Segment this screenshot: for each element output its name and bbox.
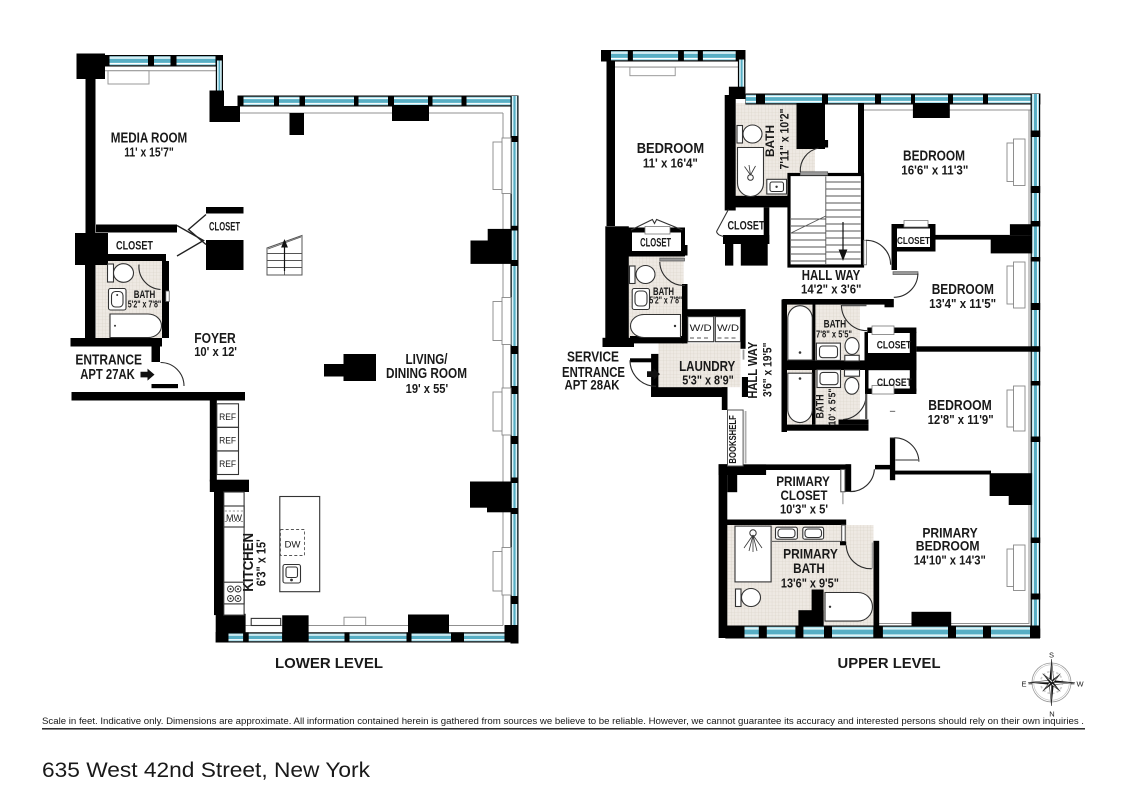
svg-text:W: W xyxy=(1076,680,1084,689)
svg-text:5'3" x 8'9": 5'3" x 8'9" xyxy=(682,373,734,387)
svg-text:W/D: W/D xyxy=(690,323,712,334)
svg-text:E: E xyxy=(1021,680,1026,689)
svg-text:BEDROOM: BEDROOM xyxy=(928,398,992,414)
svg-text:14'2" x 3'6": 14'2" x 3'6" xyxy=(801,283,861,297)
svg-text:DINING ROOM: DINING ROOM xyxy=(386,366,467,382)
svg-text:BATH: BATH xyxy=(763,125,777,157)
svg-text:10' x 5'5": 10' x 5'5" xyxy=(827,388,838,425)
svg-text:APT 28AK: APT 28AK xyxy=(565,378,620,393)
svg-text:BOOKSHELF: BOOKSHELF xyxy=(728,415,739,463)
svg-text:11' x 16'4": 11' x 16'4" xyxy=(643,157,698,171)
svg-text:7'11" x 10'2": 7'11" x 10'2" xyxy=(778,109,792,170)
svg-text:12'8" x 11'9": 12'8" x 11'9" xyxy=(928,413,994,427)
svg-text:CLOSET: CLOSET xyxy=(727,218,765,232)
svg-text:10'3" x 5': 10'3" x 5' xyxy=(780,502,828,516)
svg-text:S: S xyxy=(1049,651,1054,660)
svg-text:BEDROOM: BEDROOM xyxy=(916,539,980,554)
svg-text:3'6" x 19'5": 3'6" x 19'5" xyxy=(761,343,775,398)
svg-text:11' x 15'7": 11' x 15'7" xyxy=(124,146,174,160)
svg-text:CLOSET: CLOSET xyxy=(209,220,240,234)
svg-text:N: N xyxy=(1049,710,1054,719)
svg-text:16'6" x 11'3": 16'6" x 11'3" xyxy=(901,164,968,178)
svg-text:APT 27AK: APT 27AK xyxy=(80,367,135,383)
svg-text:6'3" x 15': 6'3" x 15' xyxy=(255,539,269,586)
svg-text:UPPER LEVEL: UPPER LEVEL xyxy=(838,655,941,672)
svg-text:14'10" x 14'3": 14'10" x 14'3" xyxy=(914,553,986,567)
svg-text:CLOSET: CLOSET xyxy=(116,239,154,253)
svg-text:635 West 42nd Street, New York: 635 West 42nd Street, New York xyxy=(42,759,371,782)
svg-text:DW: DW xyxy=(285,540,302,550)
svg-text:19' x 55': 19' x 55' xyxy=(406,382,449,396)
svg-text:W/D: W/D xyxy=(717,323,739,334)
svg-text:10' x 12': 10' x 12' xyxy=(194,345,237,359)
svg-text:5'2" x 7'8": 5'2" x 7'8" xyxy=(128,299,162,310)
svg-text:PRIMARY: PRIMARY xyxy=(783,546,838,561)
svg-text:BEDROOM: BEDROOM xyxy=(637,141,704,157)
svg-text:Scale in feet. Indicative only: Scale in feet. Indicative only. Dimensio… xyxy=(42,716,1084,726)
svg-text:PRIMARY: PRIMARY xyxy=(776,474,830,489)
svg-text:5'2" x 7'8": 5'2" x 7'8" xyxy=(649,295,682,306)
svg-text:CLOSET: CLOSET xyxy=(640,236,671,250)
svg-text:REF: REF xyxy=(219,459,236,469)
svg-text:REF: REF xyxy=(219,412,236,422)
svg-text:CLOSET: CLOSET xyxy=(877,340,912,352)
svg-text:CLOSET: CLOSET xyxy=(781,488,829,503)
svg-text:13'4" x 11'5": 13'4" x 11'5" xyxy=(929,297,996,311)
svg-text:CLOSET: CLOSET xyxy=(877,377,912,389)
svg-text:BATH: BATH xyxy=(815,394,827,418)
svg-text:CLOSET: CLOSET xyxy=(897,236,930,247)
svg-text:REF: REF xyxy=(219,435,236,445)
svg-text:BATH: BATH xyxy=(793,561,825,576)
svg-text:LOWER LEVEL: LOWER LEVEL xyxy=(275,655,383,672)
svg-text:SERVICE: SERVICE xyxy=(567,349,619,365)
svg-text:BEDROOM: BEDROOM xyxy=(932,282,994,298)
svg-text:MW: MW xyxy=(226,513,242,523)
svg-text:HALL WAY: HALL WAY xyxy=(746,341,760,398)
svg-text:7'8" x 5'5": 7'8" x 5'5" xyxy=(816,330,852,341)
svg-text:BEDROOM: BEDROOM xyxy=(903,149,965,165)
svg-text:MEDIA ROOM: MEDIA ROOM xyxy=(111,131,188,147)
svg-text:13'6" x 9'5": 13'6" x 9'5" xyxy=(781,576,839,590)
